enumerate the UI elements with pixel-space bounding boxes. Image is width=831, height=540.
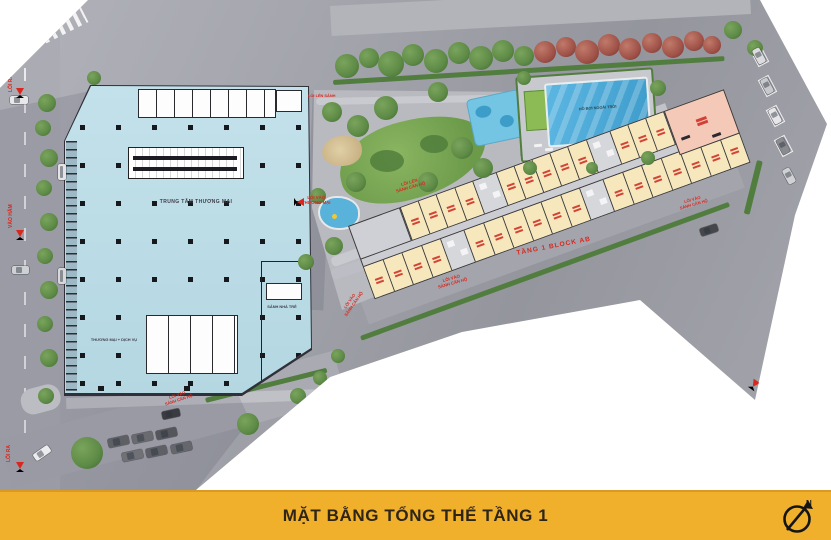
cars-layer (0, 0, 831, 490)
entrance-arrow (294, 198, 304, 206)
tree (0, 62, 12, 78)
car (12, 266, 29, 274)
car (776, 137, 791, 155)
car (782, 167, 797, 185)
car (760, 77, 775, 95)
site-ground: HỒ BƠI NGOÀI TRỜI TRUNG (0, 0, 831, 490)
car (699, 223, 719, 236)
car (58, 164, 66, 180)
entrance-arrow (16, 88, 24, 98)
compass-icon: N (779, 498, 817, 536)
plan-title: MẶT BẰNG TỔNG THỂ TẦNG 1 (283, 506, 549, 526)
car (107, 435, 129, 448)
entrance-label-exit-nw: LỐI RA (8, 75, 14, 92)
car (58, 268, 66, 284)
car (170, 441, 192, 454)
entrance-label-basement: VÀO HẦM (8, 204, 14, 228)
car (131, 431, 153, 444)
car (121, 449, 143, 462)
entrance-arrow (16, 230, 24, 240)
footer-bar: MẶT BẰNG TỔNG THỂ TẦNG 1 N (0, 490, 831, 540)
car (752, 47, 767, 65)
entrance-arrow (16, 462, 24, 472)
car (155, 427, 177, 440)
car (161, 408, 180, 420)
car (32, 445, 51, 462)
car (768, 107, 783, 125)
entrance-label-exit-sw: LỐI RA (6, 445, 12, 462)
car (145, 445, 167, 458)
site-plan-page: HỒ BƠI NGOÀI TRỜI TRUNG (0, 0, 831, 540)
compass-north-letter: N (806, 499, 812, 508)
entrance-label-lobby-up: LỐI LÊN SẢNH (308, 94, 335, 99)
